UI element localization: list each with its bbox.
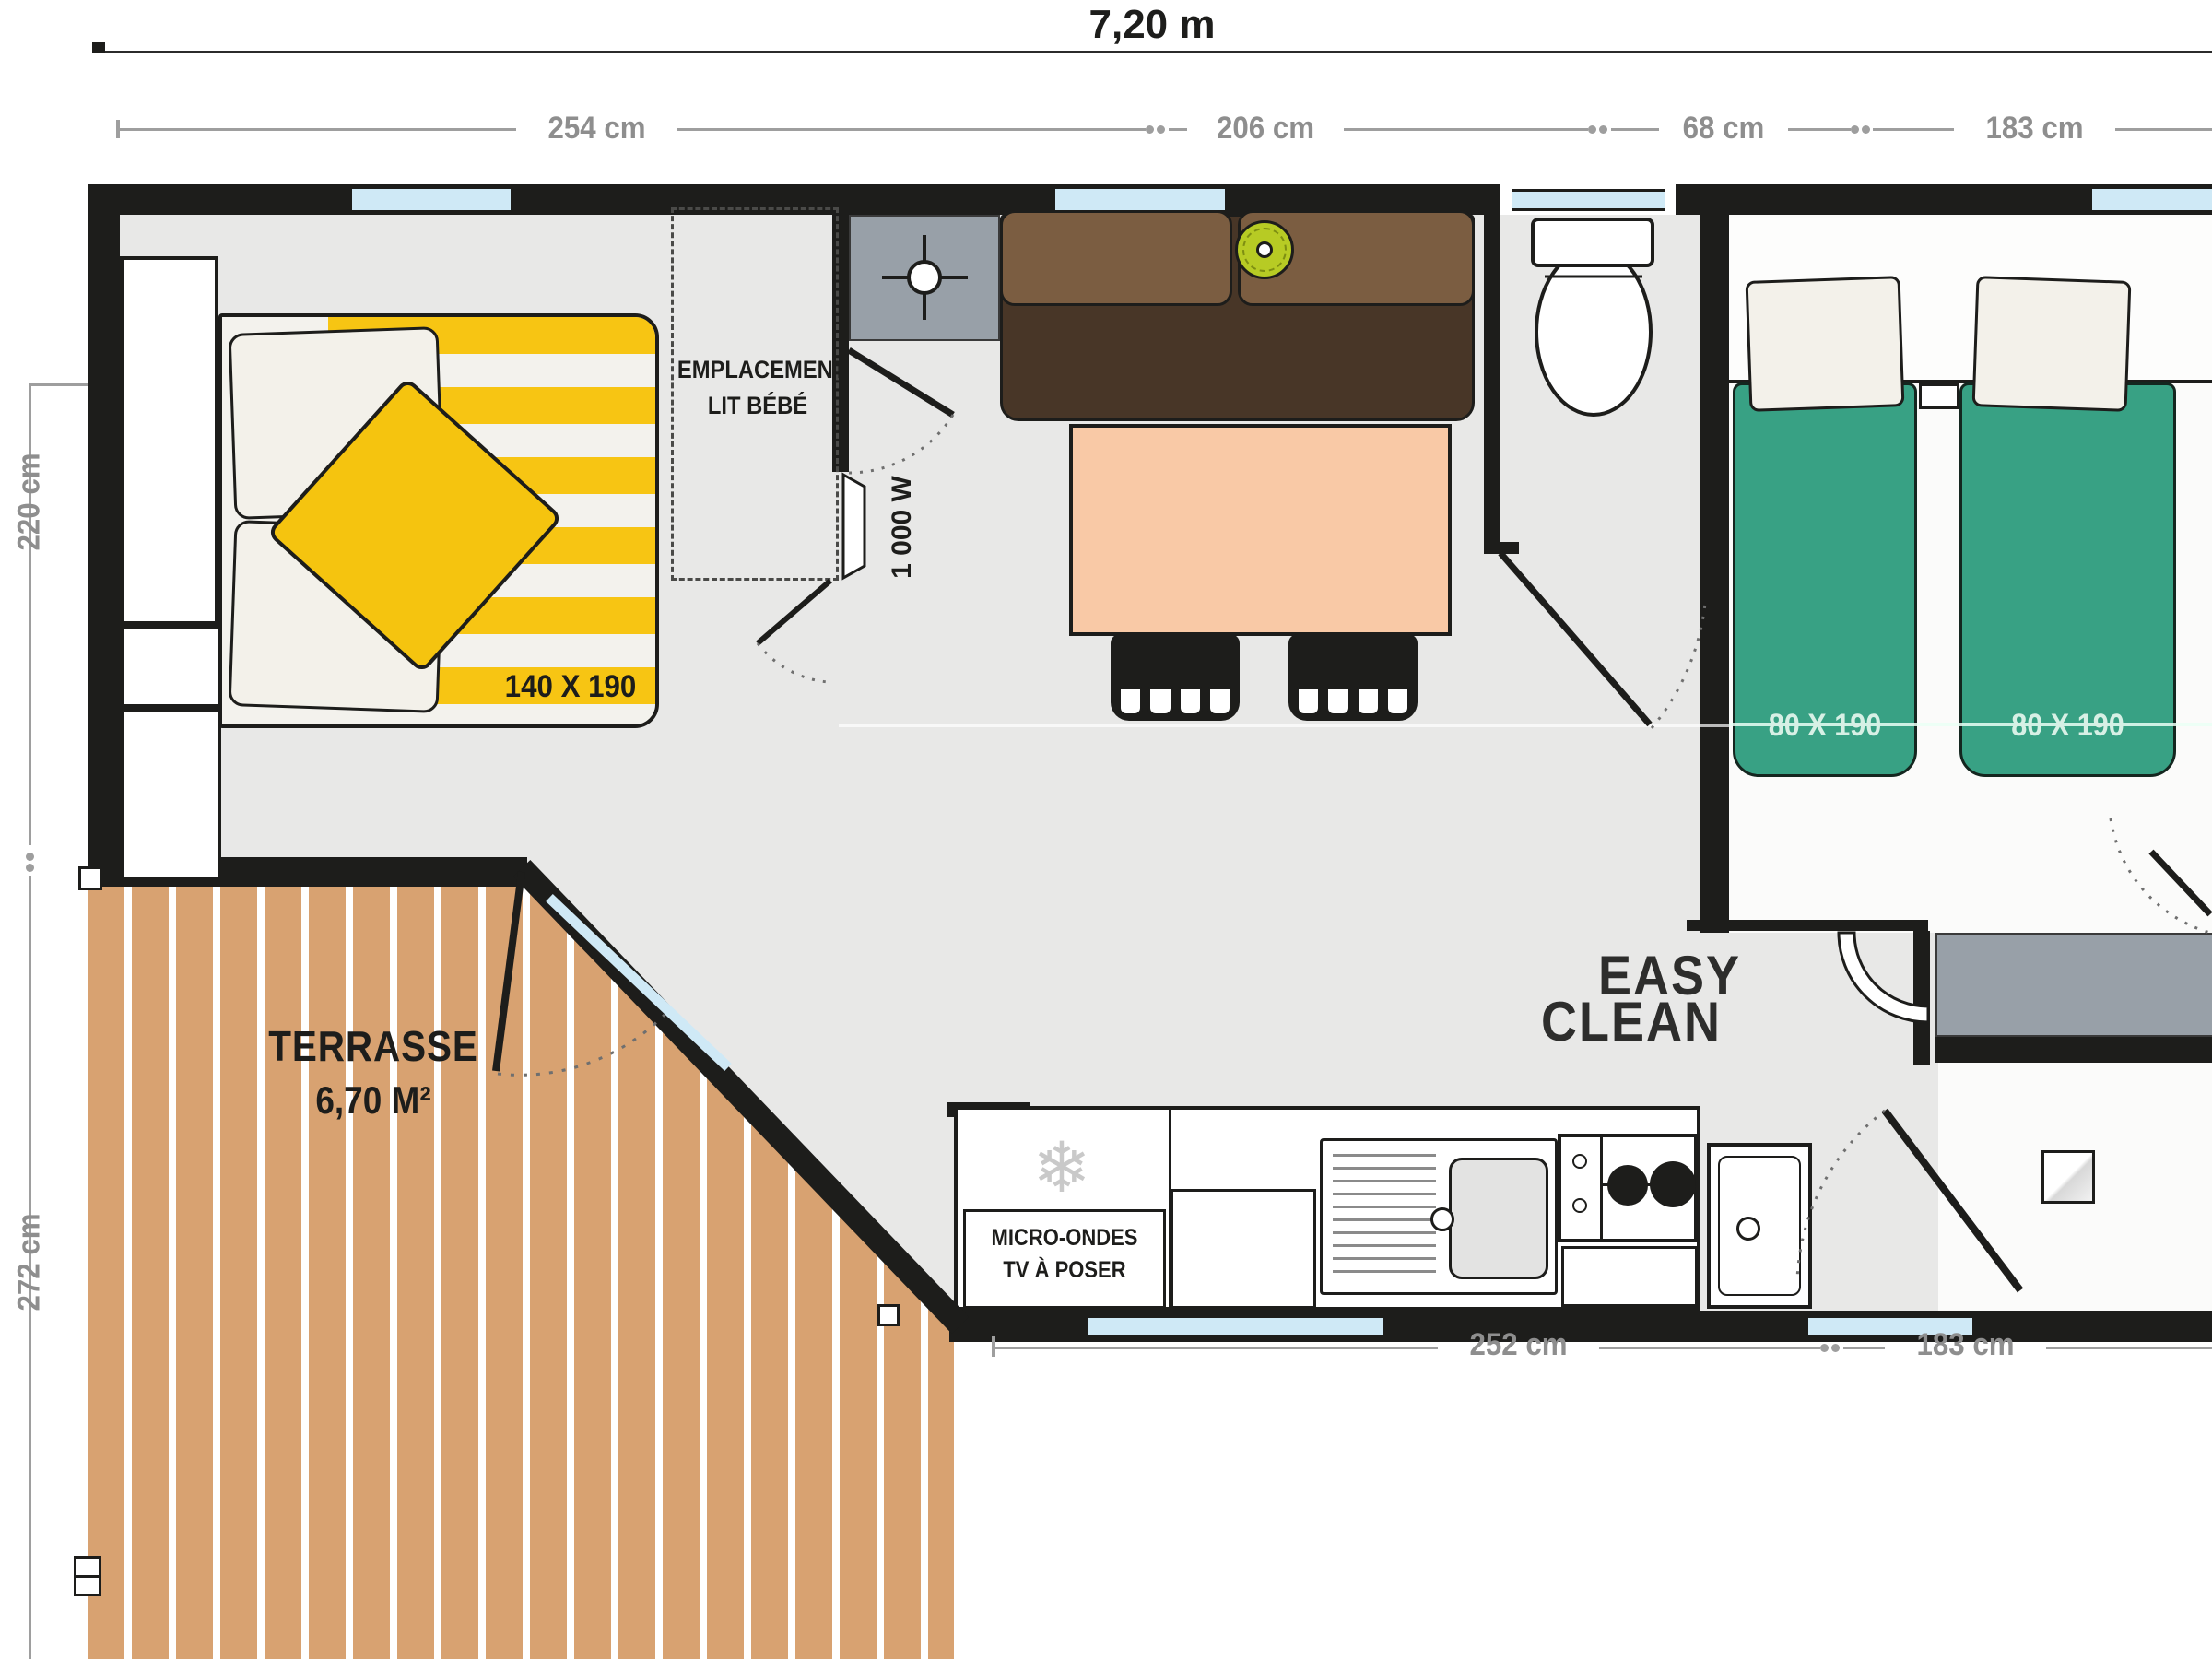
- hob-cabinet: [1561, 1246, 1698, 1307]
- wall-wardrobe-bottom: [1935, 1037, 2212, 1063]
- crib-zone-label-line1: EMPLACEMENT: [677, 356, 838, 384]
- wall-wc-stub: [1484, 542, 1519, 554]
- hob-grid-v: [1600, 1135, 1603, 1241]
- hob-knob-top: [1572, 1154, 1587, 1169]
- wall-wc-left: [1484, 215, 1500, 553]
- back-bedroom-table: [2041, 1150, 2095, 1204]
- dim-top-3: 68 cm: [1665, 111, 1783, 147]
- wardrobe-gray: [1935, 933, 2212, 1037]
- hob-burner-left: [1607, 1165, 1648, 1206]
- bathroom-sink-faucet: [1736, 1217, 1760, 1241]
- wall-bath-top: [1687, 920, 1928, 931]
- kids-pillow-left: [1746, 276, 1905, 412]
- closet-middle: [120, 625, 223, 708]
- bed-size-label: 140 X 190: [499, 669, 642, 710]
- microwave-note-line2: TV À POSER: [978, 1257, 1151, 1284]
- sofa-lamp: [1235, 220, 1294, 279]
- crib-zone: EMPLACEMENT LIT BÉBÉ: [671, 207, 839, 581]
- terrace-area: 6,70 M²: [240, 1078, 507, 1123]
- kids-bed-left-label: 80 X 190: [1742, 708, 1908, 744]
- sofa-back-cushion-left: [1000, 210, 1232, 306]
- kids-nightstand: [1919, 383, 1959, 409]
- dim-left-2: 272 cm: [12, 1190, 48, 1334]
- microwave-note-line1: MICRO-ONDES: [978, 1225, 1151, 1252]
- dim-top-2: 206 cm: [1194, 111, 1337, 147]
- wall-bath-right: [1913, 931, 1930, 1065]
- window-master-bedroom: [352, 186, 511, 213]
- hob-burner-right: [1650, 1161, 1696, 1207]
- double-bed: 140 X 190: [218, 313, 659, 728]
- fridge-snowflake-icon: ❄: [1006, 1126, 1117, 1209]
- dim-total-end-marker: [92, 42, 105, 53]
- sink-faucet: [1430, 1207, 1454, 1231]
- terrace-post-right: [877, 1304, 900, 1326]
- dining-table: [1069, 424, 1452, 636]
- ac-unit: [849, 215, 1000, 341]
- window-kids-bedroom: [2092, 186, 2212, 213]
- kids-bed-right-label: 80 X 190: [1971, 708, 2166, 744]
- dim-top-1: 254 cm: [523, 111, 671, 147]
- wall-left: [88, 184, 120, 887]
- dim-bottom-2: 183 cm: [1891, 1327, 2040, 1363]
- terrace-post-left: [74, 1556, 101, 1596]
- terrace-label: TERRASSE 6,70 M²: [221, 1021, 525, 1141]
- terrace-name: TERRASSE: [240, 1021, 507, 1071]
- chair-right: [1288, 634, 1418, 721]
- dim-total-line: [101, 51, 2212, 53]
- kitchen-cabinet: [1171, 1189, 1316, 1309]
- dim-total-label: 7,20 m: [968, 2, 1336, 44]
- window-kitchen: [1088, 1315, 1382, 1338]
- sink-basin: [1449, 1158, 1548, 1279]
- dim-left-tick: [29, 383, 88, 386]
- closet-lower: [120, 708, 221, 881]
- dim-top-4: 183 cm: [1960, 111, 2109, 147]
- chair-left: [1111, 634, 1240, 721]
- terrace-post-top: [78, 866, 102, 890]
- crib-zone-label-line2: LIT BÉBÉ: [677, 392, 838, 420]
- window-wc: [1512, 189, 1665, 211]
- sink-drainer: [1333, 1154, 1436, 1283]
- fold-line: [839, 724, 1729, 727]
- dim-bottom-1: 252 cm: [1444, 1327, 1593, 1363]
- dim-left-1: 220 cm: [12, 429, 48, 573]
- window-living: [1055, 186, 1225, 213]
- bathroom-brand-line2: CLEAN: [1541, 990, 1818, 1053]
- microwave-note-box: MICRO-ONDES TV À POSER: [963, 1209, 1166, 1309]
- bathroom-brand: EASY CLEAN: [1541, 947, 1818, 1086]
- sofa-lamp-center: [1256, 241, 1273, 258]
- wall-kids-left: [1700, 215, 1729, 933]
- closet-upper: [120, 256, 218, 625]
- floor-plan: 140 X 190 EMPLACEMENT LIT BÉBÉ 80 X 190 …: [0, 0, 2212, 1659]
- hob-knob-bottom: [1572, 1198, 1587, 1213]
- kids-pillow-right: [1972, 276, 2132, 412]
